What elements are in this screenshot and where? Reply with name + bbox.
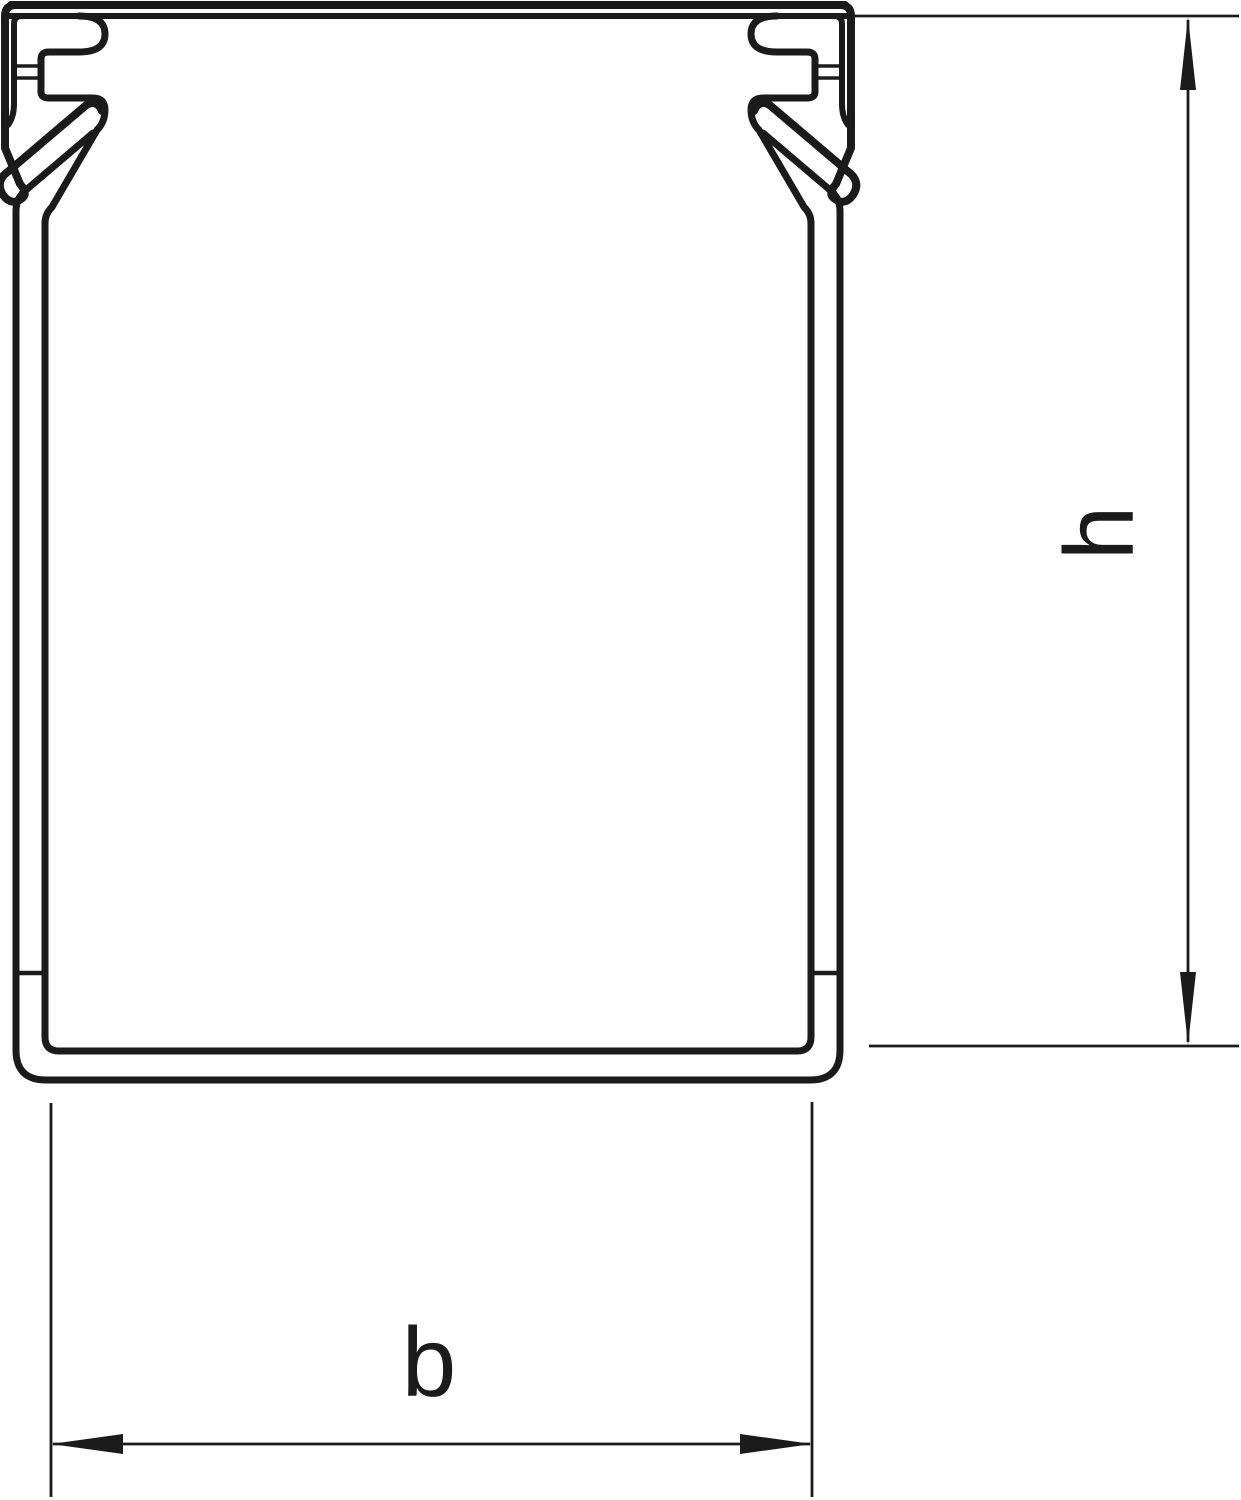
cover-underside-line bbox=[8, 16, 848, 125]
b-arrowhead-right-icon bbox=[740, 1434, 812, 1454]
dimension-b: b bbox=[51, 1102, 812, 1497]
latch-finger-lobe bbox=[751, 16, 815, 90]
profile-right-half bbox=[8, 5, 856, 1080]
wall-inner-surface bbox=[428, 86, 815, 1051]
b-arrowhead-left-icon bbox=[51, 1434, 123, 1454]
duct-profile bbox=[0, 5, 856, 1080]
h-arrowhead-down-icon bbox=[1180, 972, 1196, 1045]
cover-underside-line bbox=[8, 16, 848, 125]
drawing-canvas: h b bbox=[0, 0, 1241, 1500]
duct-cross-section-drawing: h b bbox=[0, 0, 1241, 1500]
wall-outer-surface bbox=[428, 133, 840, 1080]
dimension-h: h bbox=[854, 16, 1239, 1046]
cover-outer-contour bbox=[11, 5, 856, 202]
h-dimension-label: h bbox=[1044, 506, 1154, 561]
wall-outer-surface bbox=[16, 133, 428, 1080]
h-arrowhead-up-icon bbox=[1180, 17, 1196, 90]
latch-finger-lobe bbox=[41, 16, 105, 90]
b-dimension-label: b bbox=[402, 1307, 457, 1417]
cover-outer-contour bbox=[0, 5, 845, 202]
profile-left-half bbox=[0, 5, 848, 1080]
wall-inner-surface bbox=[41, 86, 428, 1051]
